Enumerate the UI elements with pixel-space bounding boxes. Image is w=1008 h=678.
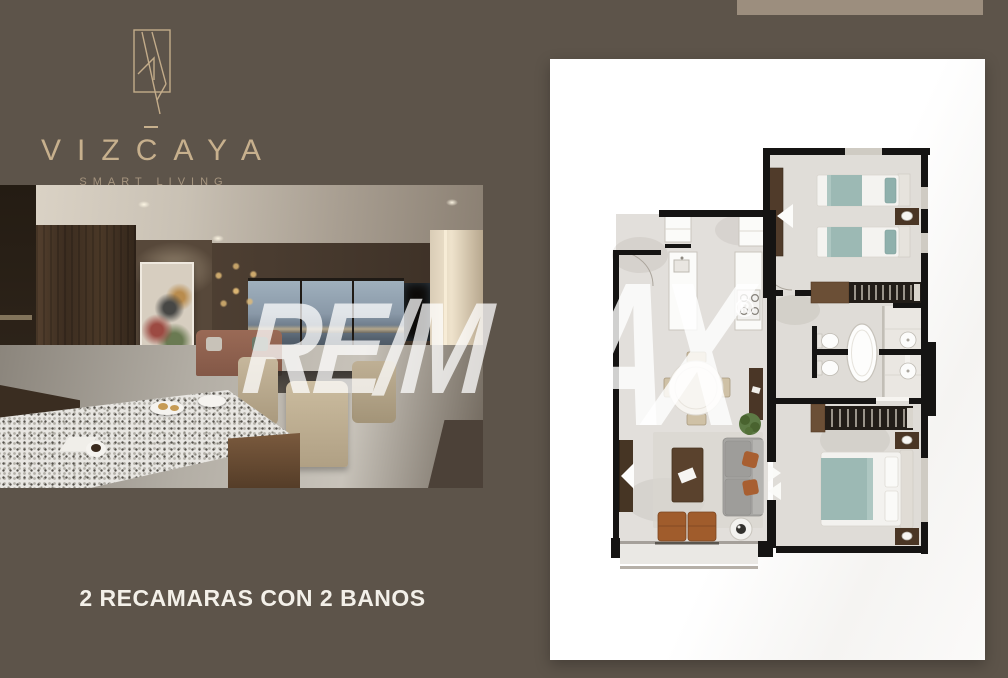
floorplan-balcony <box>620 541 758 569</box>
logo-text: VIZCAYA <box>0 134 302 167</box>
sofa-pillow <box>206 337 222 351</box>
plate <box>198 395 226 407</box>
lamp <box>902 532 912 540</box>
toilet <box>822 334 839 349</box>
window-mullion <box>352 278 354 350</box>
twin-bed <box>817 226 910 257</box>
ceiling-light-icon <box>212 235 224 242</box>
dining-chair <box>352 361 396 423</box>
tv-console <box>749 368 763 420</box>
vizcaya-logo-icon <box>128 28 174 118</box>
registered-trademark-icon: ® <box>735 293 754 324</box>
kitchen-sink <box>674 260 689 272</box>
throw-pillow <box>742 479 759 496</box>
twin-bed <box>817 174 910 206</box>
interior-photo <box>0 185 483 488</box>
brand-block: VIZCAYA SMART LIVING <box>0 28 302 188</box>
floorplan-master-closet <box>811 404 913 432</box>
queen-bed <box>821 450 913 528</box>
tv-screen <box>404 283 430 341</box>
sofa-pillow <box>252 337 268 351</box>
flyer-canvas: VIZCAYA SMART LIVING <box>0 0 1008 678</box>
logo-macron <box>144 126 158 128</box>
pastry <box>158 403 168 410</box>
caption-text: 2 RECAMARAS CON 2 BANOS <box>0 585 505 612</box>
top-accent-bar <box>737 0 983 15</box>
shelf-light <box>0 315 32 320</box>
accent-chair <box>658 512 686 541</box>
chandelier-icon <box>205 257 267 319</box>
floorplan <box>595 140 950 585</box>
island-wood-face <box>228 433 300 488</box>
ceiling-light-icon <box>138 201 150 208</box>
pastry <box>170 405 179 411</box>
lamp <box>902 436 912 444</box>
accent-chair <box>688 512 716 541</box>
window-mullion <box>300 278 302 350</box>
closet-hangers <box>811 282 921 303</box>
coffee-cup-inner <box>91 444 101 452</box>
toilet <box>822 361 839 376</box>
dining-table <box>669 361 723 415</box>
lamp <box>902 212 913 221</box>
ceiling-light-icon <box>446 199 458 206</box>
